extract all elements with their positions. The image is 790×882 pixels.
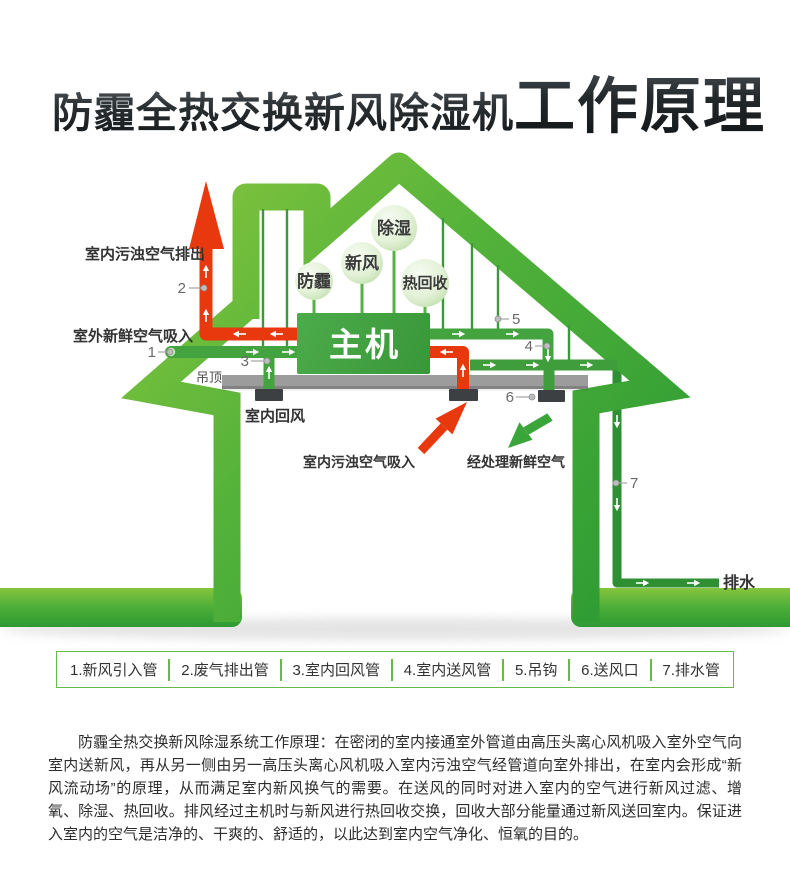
legend-divider [568,659,570,681]
principle-description: 防霾全热交换新风除湿系统工作原理：在密闭的室内接通室外管道由高压头离心风机吸入室… [48,731,742,846]
ground-right [571,588,790,627]
callout-5: 5 [512,311,520,328]
dirty-intake-arrow-icon [418,402,467,454]
ceiling-bar [222,375,588,391]
label-exhaust-out: 室内污浊空气排出 [85,245,205,263]
legend-divider [391,659,393,681]
legend-item-7: 7.排水管 [662,659,720,680]
callout-7: 7 [630,475,638,492]
bubble-anti-smog-label: 防霾 [297,271,331,291]
main-unit-label: 主机 [329,326,401,363]
page-title: 防霾全热交换新风除湿机工作原理 [52,56,766,145]
page-title-main: 防霾全热交换新风除湿机 [52,79,514,139]
legend-item-1: 1.新风引入管 [70,659,158,680]
label-dirty-intake: 室内污浊空气吸入 [303,454,415,470]
bubble-dehumidify-label: 除湿 [377,218,411,238]
label-return-air: 室内回风 [245,407,305,425]
legend-bar: 1.新风引入管 2.废气排出管 3.室内回风管 4.室内送风管 5.吊钩 6.送… [56,651,734,688]
supply-vent [538,390,565,402]
label-fresh-in: 室外新鲜空气吸入 [73,327,193,345]
treated-air-arrow-icon [508,413,553,448]
callout-3: 3 [241,353,249,370]
intake-vent [449,389,478,401]
main-unit: 主机 [297,313,430,374]
bubble-heat-recovery-label: 热回收 [402,274,447,292]
bubble-fresh-air-label: 新风 [345,253,379,273]
label-drain: 排水 [723,573,756,592]
ground-left [0,588,242,627]
legend-item-3: 3.室内回风管 [292,659,380,680]
page-title-emphasis: 工作原理 [514,56,766,145]
legend-item-6: 6.送风口 [581,659,639,680]
legend-divider [168,659,170,681]
working-principle-diagram: 防霾 新风 除湿 热回收 主机 [0,148,790,650]
callout-1: 1 [148,344,156,361]
callout-2: 2 [178,280,186,297]
label-ceiling: 吊顶 [196,370,222,385]
legend-item-4: 4.室内送风管 [404,659,492,680]
legend-divider [650,659,652,681]
fresh-air-pipe [167,348,300,356]
legend-item-2: 2.废气排出管 [181,659,269,680]
legend-divider [280,659,282,681]
callout-6: 6 [506,389,514,406]
exhaust-arrow-icon [189,181,224,249]
label-treated-fresh: 经处理新鲜空气 [467,454,565,470]
return-vent [255,389,283,401]
callout-4: 4 [525,338,533,355]
legend-divider [502,659,504,681]
legend-item-5: 5.吊钩 [515,659,558,680]
